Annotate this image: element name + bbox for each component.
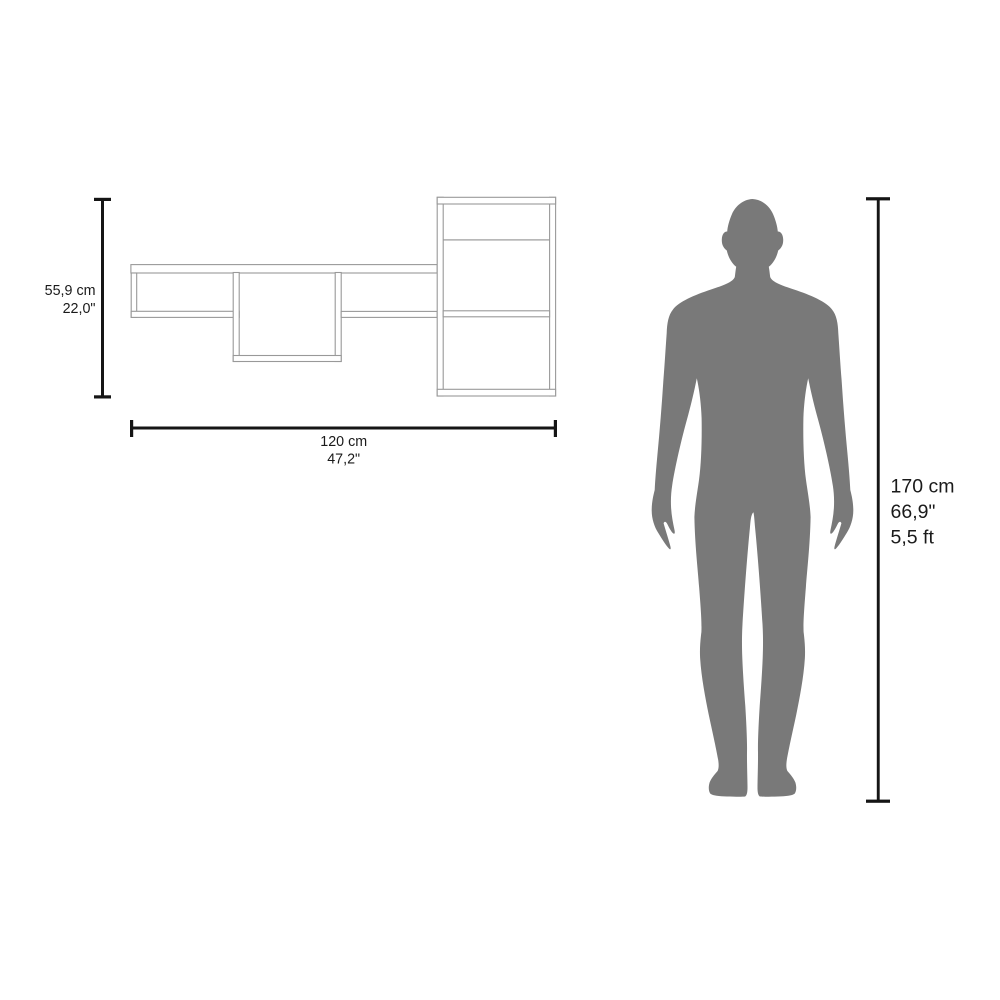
svg-text:22,0": 22,0": [63, 301, 96, 317]
svg-text:170 cm: 170 cm: [891, 476, 955, 498]
svg-text:66,9": 66,9": [891, 501, 936, 523]
svg-text:47,2": 47,2": [327, 452, 360, 468]
svg-text:55,9 cm: 55,9 cm: [45, 283, 96, 299]
svg-text:120 cm: 120 cm: [320, 434, 367, 450]
svg-text:5,5 ft: 5,5 ft: [891, 527, 935, 549]
